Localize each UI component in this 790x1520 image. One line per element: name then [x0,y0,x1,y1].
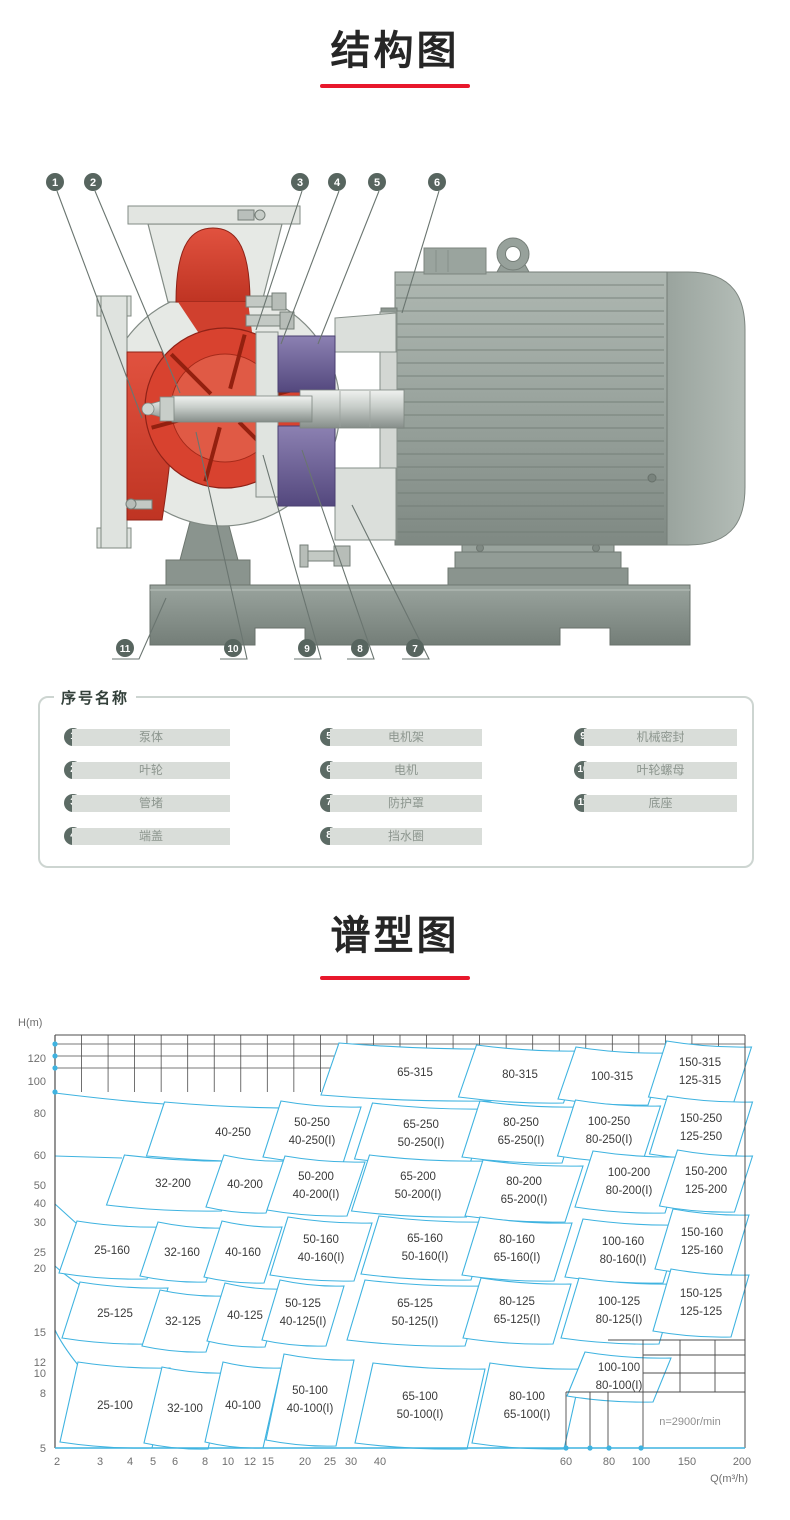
model-cell-label: 32-160 [164,1247,200,1259]
model-cell-label: 80-250 [503,1117,539,1129]
model-cell-label: 65-100 [402,1391,438,1403]
model-cell-label: 40-160 [225,1247,261,1259]
page: 结构图 [0,0,790,1520]
svg-text:8: 8 [357,644,363,655]
model-cell-label: 80-200(I) [606,1185,653,1197]
model-cell-label: 32-125 [165,1316,201,1328]
y-tick-label: 80 [34,1108,46,1120]
model-cell-label: 65-100(I) [504,1409,551,1421]
y-tick-label: 5 [40,1443,46,1455]
x-tick-label: 200 [733,1456,751,1468]
y-tick-label: 30 [34,1217,46,1229]
model-cell [465,1160,583,1222]
x-tick-label: 5 [150,1456,156,1468]
x-tick-label: 2 [54,1456,60,1468]
model-cell-label: 80-125 [499,1296,535,1308]
model-cell-label: 65-250 [403,1119,439,1131]
model-cell-label: 125-315 [679,1075,721,1087]
svg-text:7: 7 [412,644,418,655]
y-tick-label: 40 [34,1198,46,1210]
model-cell-label: 50-160(I) [402,1251,449,1263]
model-cell [270,1217,372,1281]
model-cell-label: 80-250(I) [586,1134,633,1146]
motor-mount [448,541,628,585]
model-cell-label: 150-125 [680,1288,722,1300]
part-name-label: 机械密封 [584,729,737,746]
part-row: 8挡水圈 [40,825,752,847]
model-cell-label: 25-125 [97,1308,133,1320]
model-cell-label: 50-250(I) [398,1137,445,1149]
model-cell [263,1101,361,1163]
model-cell-label: 40-100 [225,1400,261,1412]
y-tick-label: 20 [34,1263,46,1275]
model-cell [355,1363,485,1449]
pump-foot [166,522,250,585]
model-cell-label: 40-250 [215,1127,251,1139]
x-tick-label: 3 [97,1456,103,1468]
y-axis-label: H(m) [18,1017,42,1029]
svg-text:11: 11 [120,644,131,655]
model-cell-label: 50-125 [285,1298,321,1310]
x-tick-label: 40 [374,1456,386,1468]
model-cell-label: 150-250 [680,1113,722,1125]
model-cell-label: 150-160 [681,1227,723,1239]
x-tick-label: 8 [202,1456,208,1468]
part-name-label: 底座 [584,795,737,812]
x-tick-label: 10 [222,1456,234,1468]
svg-text:9: 9 [304,644,310,655]
model-cell-label: 50-200 [298,1171,334,1183]
model-cell-label: 40-100(I) [287,1403,334,1415]
motor [381,238,745,545]
model-cell-label: 80-160 [499,1234,535,1246]
model-cell [463,1278,571,1344]
svg-text:6: 6 [434,177,440,189]
y-tick-label: 100 [28,1076,46,1088]
model-cell-label: 40-125 [227,1310,263,1322]
model-cell-label: 65-200(I) [501,1194,548,1206]
model-cell [347,1280,483,1346]
x-tick-label: 4 [127,1456,133,1468]
structure-title: 结构图 [0,18,790,76]
x-tick-label: 12 [244,1456,256,1468]
model-cell-label: 50-100 [292,1385,328,1397]
model-cell-label: 100-315 [591,1071,633,1083]
y-tick-label: 60 [34,1150,46,1162]
model-cell-label: 50-125(I) [392,1316,439,1328]
model-cell-label: 40-200 [227,1179,263,1191]
x-tick-label: 25 [324,1456,336,1468]
x-tick-label: 80 [603,1456,615,1468]
model-cell-label: 50-200(I) [395,1189,442,1201]
spectrum-chart: 65-31580-315100-315150-315125-31540-2505… [0,1000,790,1520]
model-cell-label: 40-160(I) [298,1252,345,1264]
model-cell-label: 25-100 [97,1400,133,1412]
svg-text:10: 10 [227,644,239,655]
y-tick-label: 15 [34,1327,46,1339]
model-cell [649,1041,752,1103]
y-tick-label: 25 [34,1247,46,1259]
model-cell-label: 125-200 [685,1184,727,1196]
model-cell-label: 65-125(I) [494,1314,541,1326]
model-cell [653,1269,749,1337]
part-row: 11底座 [40,792,752,814]
model-cell-label: 65-160 [407,1233,443,1245]
model-cell [655,1209,749,1275]
svg-text:4: 4 [334,177,341,189]
model-cell-label: 65-125 [397,1298,433,1310]
model-cell-label: 80-160(I) [600,1254,647,1266]
model-cell-label: 100-200 [608,1167,650,1179]
plug-bolt [246,296,274,307]
model-cell-label: 80-315 [502,1069,538,1081]
model-cells: 65-31580-315100-315150-315125-31540-2505… [59,1041,753,1449]
model-cell-label: 80-200 [506,1176,542,1188]
x-tick-label: 30 [345,1456,357,1468]
spectrum-title: 谱型图 [0,903,790,961]
model-cell-label: 65-200 [400,1171,436,1183]
model-cell-label: 80-125(I) [596,1314,643,1326]
part-name-label: 叶轮螺母 [584,762,737,779]
model-cell-label: 100-250 [588,1116,630,1128]
y-tick-label: 50 [34,1180,46,1192]
x-tick-label: 150 [678,1456,696,1468]
model-cell [462,1217,572,1281]
pump-structure-diagram: 1234561110987 [0,150,790,690]
x-tick-label: 15 [262,1456,274,1468]
svg-text:3: 3 [297,177,303,189]
svg-text:1: 1 [52,177,58,189]
model-cell-label: 50-100(I) [397,1409,444,1421]
model-cell [650,1096,753,1160]
model-cell-label: 32-100 [167,1403,203,1415]
model-cell-label: 40-200(I) [293,1189,340,1201]
model-cell-label: 65-250(I) [498,1135,545,1147]
model-cell [472,1363,582,1449]
y-tick-label: 120 [28,1053,46,1065]
spectrum-title-underline [320,976,470,980]
y-tick-label: 10 [34,1368,46,1380]
x-tick-label: 60 [560,1456,572,1468]
part-row: 10叶轮螺母 [40,759,752,781]
model-cell-label: 100-160 [602,1236,644,1248]
motor-terminal-box [424,248,486,274]
model-cell-label: 150-315 [679,1057,721,1069]
model-cell-label: 65-160(I) [494,1252,541,1264]
model-cell [352,1155,485,1217]
motor-fins [396,278,664,538]
model-cell [267,1156,365,1216]
model-cell-label: 40-250(I) [289,1135,336,1147]
impeller-nut [160,397,174,421]
parts-list-panel: 序号名称 1泵体2叶轮3管堵4端盖5电机架6电机7防护罩8挡水圈9机械密封10叶… [38,696,754,868]
model-cell-label: 125-125 [680,1306,722,1318]
model-cell-label: 125-250 [680,1131,722,1143]
speed-note: n=2900r/min [659,1416,720,1428]
model-cell-label: 65-315 [397,1067,433,1079]
svg-text:2: 2 [90,177,96,189]
model-cell-label: 150-200 [685,1166,727,1178]
model-cell-label: 32-200 [155,1178,191,1190]
model-cell-label: 25-160 [94,1245,130,1257]
pump-shaft [142,390,404,428]
y-tick-label: 8 [40,1388,46,1400]
model-cell-label: 40-125(I) [280,1316,327,1328]
model-cell [567,1352,671,1402]
model-cell-label: 125-160 [681,1245,723,1257]
part-name-label: 挡水圈 [330,828,482,845]
model-cell-label: 80-100(I) [596,1380,643,1392]
structure-title-underline [320,84,470,88]
model-cell-label: 100-100 [598,1362,640,1374]
model-cell-label: 80-100 [509,1391,545,1403]
model-cell-label: 50-160 [303,1234,339,1246]
model-cell-label: 50-250 [294,1117,330,1129]
svg-text:5: 5 [374,177,380,189]
x-tick-label: 20 [299,1456,311,1468]
part-row: 9机械密封 [40,726,752,748]
pump-base [150,585,690,645]
parts-legend: 序号名称 [54,687,136,708]
x-axis-label: Q(m³/h) [710,1473,748,1485]
model-cell-label: 100-125 [598,1296,640,1308]
discharge-flange [128,206,300,224]
x-tick-label: 6 [172,1456,178,1468]
x-tick-label: 100 [632,1456,650,1468]
